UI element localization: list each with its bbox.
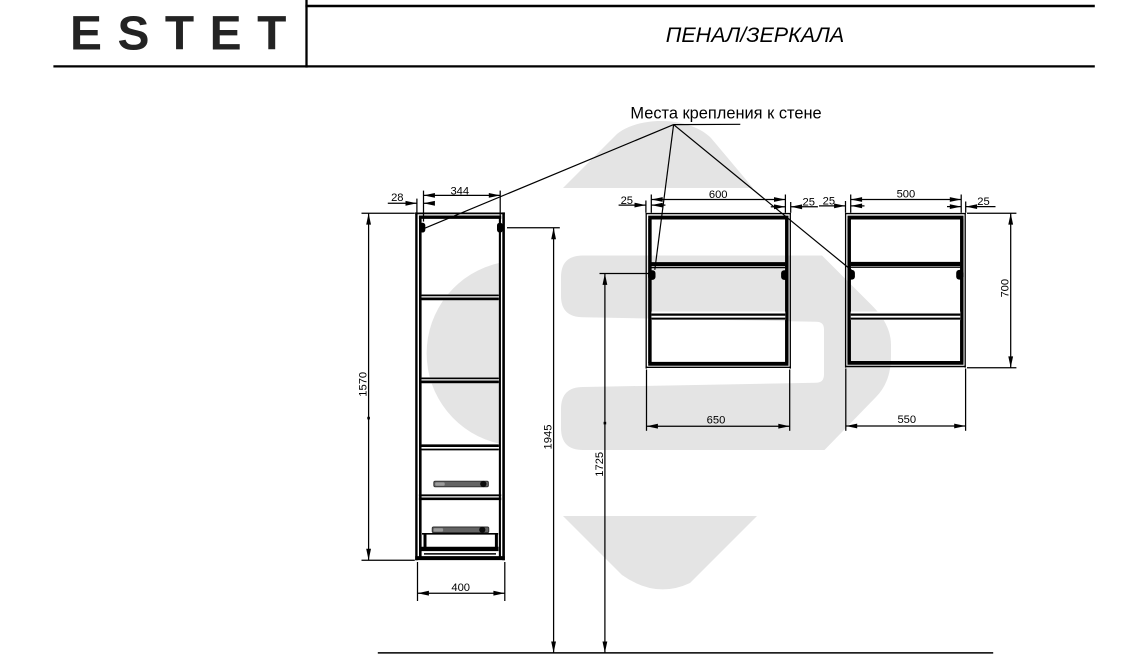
- svg-text:400: 400: [451, 582, 470, 594]
- svg-text:700: 700: [1000, 279, 1012, 298]
- svg-text:ESTET: ESTET: [70, 8, 302, 61]
- svg-text:500: 500: [897, 188, 916, 200]
- svg-text:550: 550: [897, 414, 916, 426]
- svg-text:28: 28: [391, 192, 403, 204]
- svg-text:ПЕНАЛ/ЗЕРКАЛА: ПЕНАЛ/ЗЕРКАЛА: [666, 23, 844, 47]
- svg-text:650: 650: [707, 414, 726, 426]
- svg-text:1725: 1725: [594, 452, 606, 477]
- svg-text:1570: 1570: [357, 372, 369, 397]
- svg-text:Места крепления к стене: Места крепления к стене: [630, 105, 821, 123]
- svg-text:1945: 1945: [542, 425, 554, 450]
